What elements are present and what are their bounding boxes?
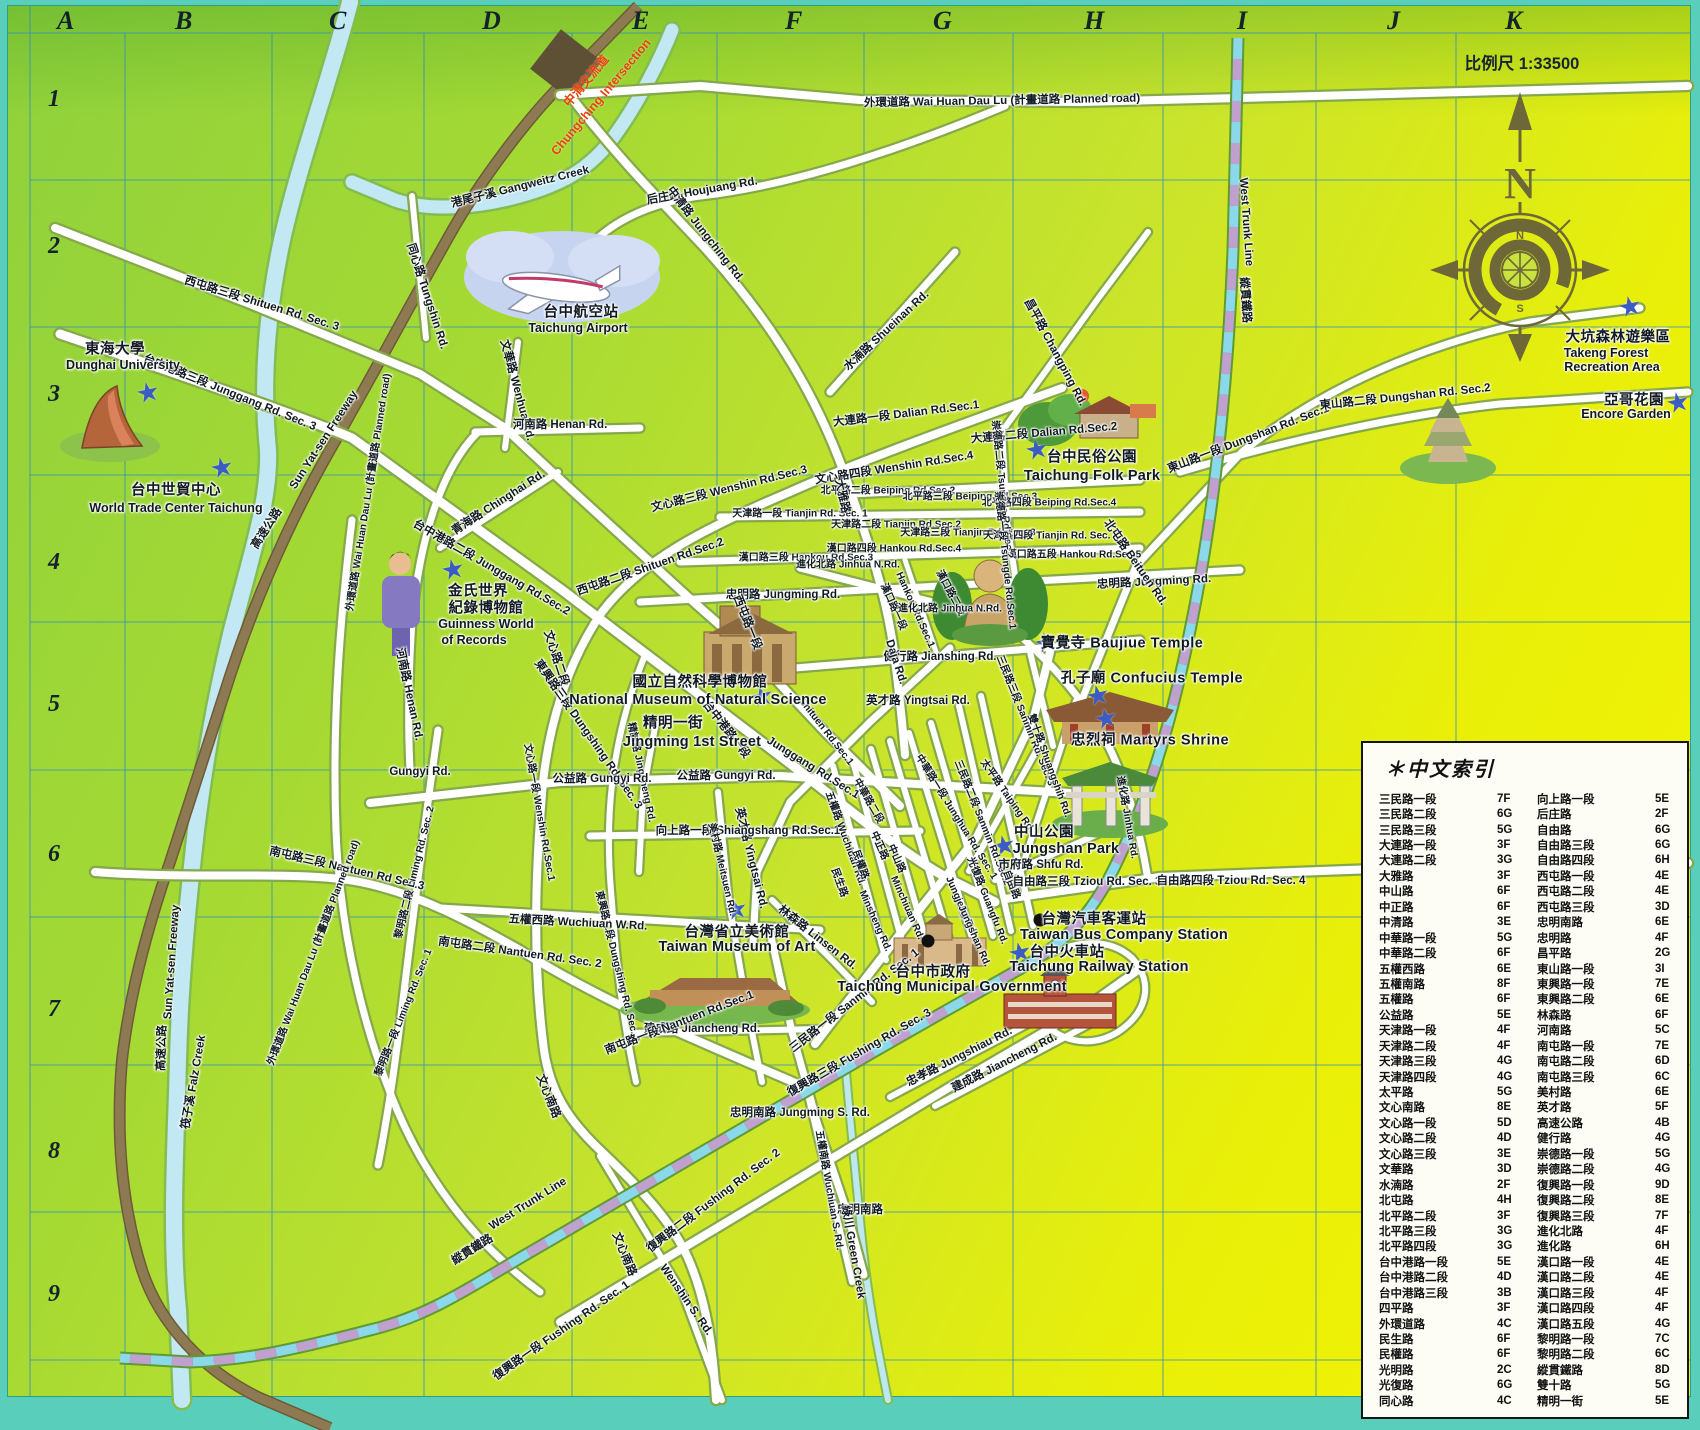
chinese-index-panel: ＊中文索引 三民路一段7F向上路一段5E三民路二段6G后庄路2F三民路三段5G自… (1361, 741, 1689, 1419)
index-grid-code: 5E (1497, 1256, 1537, 1268)
index-row: 台中港路二段4D漢口路二段4E (1379, 1270, 1679, 1285)
index-grid-code: 4E (1655, 870, 1679, 882)
index-road-name: 五權南路 (1379, 976, 1497, 992)
index-grid-code: 7E (1655, 978, 1679, 990)
landmark-label: 台中世貿中心 (131, 479, 221, 500)
grid-row-label-2: 2 (48, 233, 60, 260)
compass-n-small: N (1516, 230, 1524, 242)
index-grid-code: 4G (1655, 1318, 1679, 1330)
index-grid-code: 6G (1655, 839, 1679, 851)
landmark-label: 寶覺寺 Baujiue Temple (1041, 632, 1204, 653)
index-row: 天津路三段4G南屯路二段6D (1379, 1053, 1679, 1068)
index-road-name: 復興路三段 (1537, 1208, 1655, 1224)
index-row: 民生路6F黎明路一段7C (1379, 1331, 1679, 1346)
index-row: 北平路二段3F復興路三段7F (1379, 1208, 1679, 1223)
grid-row-label-1: 1 (48, 86, 60, 113)
index-grid-code: 6H (1655, 1240, 1679, 1252)
index-grid-code: 5E (1655, 1395, 1679, 1407)
index-row: 台中港路三段3B漢口路三段4F (1379, 1285, 1679, 1300)
landmark-label: World Trade Center Taichung (89, 501, 262, 515)
index-road-name: 民生路 (1379, 1331, 1497, 1347)
index-road-name: 天津路四段 (1379, 1069, 1497, 1085)
index-row: 天津路二段4F南屯路一段7E (1379, 1038, 1679, 1053)
road-label: 高速公路 (152, 1025, 170, 1072)
index-road-name: 南屯路三段 (1537, 1069, 1655, 1085)
index-grid-code: 6E (1497, 963, 1537, 975)
index-row: 文心路二段4D健行路4G (1379, 1131, 1679, 1146)
index-road-name: 復興路二段 (1537, 1192, 1655, 1208)
grid-col-label-C: C (329, 6, 346, 36)
landmark-label: 台中航空站 (544, 301, 619, 322)
road-label: 公益路 Gungyi Rd. (676, 767, 775, 783)
index-road-name: 南屯路二段 (1537, 1053, 1655, 1069)
grid-row-label-4: 4 (48, 549, 60, 576)
index-grid-code: 6C (1655, 1348, 1679, 1360)
index-row: 大連路一段3F自由路三段6G (1379, 837, 1679, 852)
index-road-name: 東興路一段 (1537, 976, 1655, 992)
index-road-name: 漢口路四段 (1537, 1300, 1655, 1316)
index-road-name: 中清路 (1379, 914, 1497, 930)
index-road-name: 北平路三段 (1379, 1223, 1497, 1239)
index-grid-code: 4F (1655, 932, 1679, 944)
landmark-label: of Records (441, 633, 506, 647)
landmark-label: Jingming 1st Street (623, 734, 761, 750)
index-road-name: 中山路 (1379, 883, 1497, 899)
index-road-name: 黎明路二段 (1537, 1346, 1655, 1362)
index-grid-code: 4F (1497, 1040, 1537, 1052)
landmark-label: 大坑森林遊樂區 (1566, 326, 1671, 347)
index-road-name: 天津路二段 (1379, 1038, 1497, 1054)
index-grid-code: 5G (1497, 824, 1537, 836)
grid-col-label-E: E (632, 6, 649, 36)
index-road-name: 大雅路 (1379, 868, 1497, 884)
index-grid-code: 4E (1655, 885, 1679, 897)
road-label: Gungyi Rd. (389, 766, 450, 778)
index-road-name: 河南路 (1537, 1022, 1655, 1038)
index-grid-code: 6F (1655, 1009, 1679, 1021)
index-grid-code: 8F (1497, 978, 1537, 990)
landmark-label: Takeng Forest (1564, 346, 1649, 360)
index-grid-code: 4E (1655, 1256, 1679, 1268)
index-grid-code: 6F (1497, 885, 1537, 897)
index-grid-code: 5D (1497, 1117, 1537, 1129)
road-label: 英才路 Yingtsai Rd. (866, 692, 970, 708)
grid-col-label-B: B (175, 6, 192, 36)
index-grid-code: 4B (1655, 1117, 1679, 1129)
road-label: 進化北路 Jinhua N.Rd. (796, 556, 900, 571)
index-road-name: 忠明路 (1537, 930, 1655, 946)
index-road-name: 健行路 (1537, 1130, 1655, 1146)
index-grid-code: 7F (1655, 1210, 1679, 1222)
index-grid-code: 4G (1497, 1055, 1537, 1067)
index-grid-code: 4F (1655, 1225, 1679, 1237)
index-road-name: 漢口路三段 (1537, 1285, 1655, 1301)
landmark-star-marker: ★ (133, 377, 162, 408)
index-grid-code: 5C (1655, 1024, 1679, 1036)
index-road-name: 三民路一段 (1379, 791, 1497, 807)
index-grid-code: 4G (1655, 1163, 1679, 1175)
road-label: 自由路四段 Tziou Rd. Sec. 4 (1157, 872, 1306, 888)
index-road-name: 雙十路 (1537, 1377, 1655, 1393)
index-grid-code: 2F (1655, 808, 1679, 820)
index-grid-code: 3B (1497, 1287, 1537, 1299)
index-road-name: 自由路三段 (1537, 837, 1655, 853)
grid-row-label-3: 3 (48, 381, 60, 408)
index-row: 五權南路8F東興路一段7E (1379, 976, 1679, 991)
index-road-name: 美村路 (1537, 1084, 1655, 1100)
index-row: 五權西路6E東山路一段3I (1379, 961, 1679, 976)
grid-col-label-A: A (57, 6, 74, 36)
index-road-name: 光復路 (1379, 1377, 1497, 1393)
index-road-name: 四平路 (1379, 1300, 1497, 1316)
road-casing (598, 106, 1005, 238)
landmark-label: 忠烈祠 Martyrs Shrine (1071, 729, 1229, 750)
index-grid-code: 6C (1655, 1071, 1679, 1083)
index-grid-code: 9D (1655, 1179, 1679, 1191)
index-row: 水湳路2F復興路一段9D (1379, 1177, 1679, 1192)
grid-row-label-7: 7 (48, 996, 60, 1023)
road-label: 縱貫鐵路 (1236, 276, 1255, 323)
index-row: 文心南路8E英才路5F (1379, 1100, 1679, 1115)
index-grid-code: 3D (1497, 1163, 1537, 1175)
index-grid-code: 6E (1655, 993, 1679, 1005)
index-road-name: 同心路 (1379, 1393, 1497, 1409)
index-grid-code: 8D (1655, 1364, 1679, 1376)
landmark-label: National Museum of Natural Science (569, 692, 826, 708)
index-road-name: 大連路二段 (1379, 852, 1497, 868)
index-road-name: 黎明路一段 (1537, 1331, 1655, 1347)
index-row: 三民路二段6G后庄路2F (1379, 806, 1679, 821)
index-grid-code: 2G (1655, 947, 1679, 959)
index-road-name: 復興路一段 (1537, 1177, 1655, 1193)
index-row: 文心路一段5D高速公路4B (1379, 1115, 1679, 1130)
index-road-name: 后庄路 (1537, 806, 1655, 822)
index-grid-code: 6F (1497, 993, 1537, 1005)
index-grid-code: 3E (1497, 1148, 1537, 1160)
index-road-name: 昌平路 (1537, 945, 1655, 961)
landmark-label: 中山公園 (1014, 821, 1074, 842)
index-row: 北平路三段3G進化北路4F (1379, 1223, 1679, 1238)
index-road-name: 文華路 (1379, 1161, 1497, 1177)
index-road-name: 公益路 (1379, 1007, 1497, 1023)
scale-label: 比例尺 1:33500 (1442, 50, 1602, 74)
index-grid-code: 4C (1497, 1318, 1537, 1330)
index-title: ＊中文索引 (1385, 753, 1495, 782)
index-row: 光明路2C縱貫鐵路8D (1379, 1362, 1679, 1377)
index-road-name: 漢口路二段 (1537, 1269, 1655, 1285)
index-grid-code: 6E (1655, 1086, 1679, 1098)
compass-north-big: N (1504, 159, 1536, 208)
index-row: 文心路三段3E崇德路一段5G (1379, 1146, 1679, 1161)
index-grid-code: 5E (1655, 793, 1679, 805)
index-grid-code: 6E (1655, 916, 1679, 928)
index-road-name: 進化北路 (1537, 1223, 1655, 1239)
index-grid-code: 6G (1497, 808, 1537, 820)
index-row: 五權路6F東興路二段6E (1379, 992, 1679, 1007)
index-road-name: 文心路三段 (1379, 1146, 1497, 1162)
index-grid-code: 4F (1655, 1287, 1679, 1299)
landmark-label: 國立自然科學博物館 (633, 671, 768, 692)
index-row: 太平路5G美村路6E (1379, 1084, 1679, 1099)
index-road-name: 高速公路 (1537, 1115, 1655, 1131)
index-body: 三民路一段7F向上路一段5E三民路二段6G后庄路2F三民路三段5G自由路6G大連… (1379, 791, 1679, 1409)
index-row: 大連路二段3G自由路四段6H (1379, 853, 1679, 868)
grid-col-label-H: H (1084, 6, 1104, 36)
landmark-label: Taichung Folk Park (1024, 468, 1160, 484)
grid-row-label-5: 5 (48, 691, 60, 718)
road-label: 忠明南路 Jungming S. Rd. (730, 1104, 870, 1120)
index-grid-code: 4D (1497, 1271, 1537, 1283)
landmark-label: Jungshan Park (1013, 841, 1120, 857)
landmark-label: Taichung Airport (528, 321, 627, 335)
index-row: 中清路3E忠明南路6E (1379, 915, 1679, 930)
index-road-name: 台中港路三段 (1379, 1285, 1497, 1301)
index-grid-code: 3G (1497, 1225, 1537, 1237)
road-label: 河南路 Henan Rd. (513, 416, 608, 432)
grid-col-label-D: D (482, 6, 501, 36)
index-grid-code: 3G (1497, 1240, 1537, 1252)
index-road-name: 漢口路五段 (1537, 1316, 1655, 1332)
index-road-name: 三民路二段 (1379, 806, 1497, 822)
index-road-name: 外環道路 (1379, 1316, 1497, 1332)
index-road-name: 崇德路二段 (1537, 1161, 1655, 1177)
grid-col-label-G: G (933, 6, 952, 36)
index-row: 中正路6F西屯路三段3D (1379, 899, 1679, 914)
grid-col-label-F: F (785, 6, 802, 36)
grid-row-label-9: 9 (48, 1281, 60, 1308)
index-road-name: 精明一街 (1537, 1393, 1655, 1409)
index-grid-code: 3F (1497, 1302, 1537, 1314)
landmark-label: Dunghai University (66, 358, 180, 372)
grid-row-label-8: 8 (48, 1138, 60, 1165)
grid-col-label-I: I (1237, 6, 1247, 36)
index-grid-code: 4H (1497, 1194, 1537, 1206)
index-grid-code: 5E (1497, 1009, 1537, 1021)
index-road-name: 文心南路 (1379, 1099, 1497, 1115)
landmark-star-marker: ★ (1615, 291, 1644, 322)
index-grid-code: 6F (1497, 1333, 1537, 1345)
index-road-name: 崇德路一段 (1537, 1146, 1655, 1162)
index-road-name: 北平路四段 (1379, 1238, 1497, 1254)
index-road-name: 北屯路 (1379, 1192, 1497, 1208)
road-casing (1073, 308, 1640, 722)
index-grid-code: 4G (1655, 1132, 1679, 1144)
index-road-name: 西屯路一段 (1537, 868, 1655, 884)
index-road-name: 自由路四段 (1537, 852, 1655, 868)
landmark-label: Taichung Municipal Government (837, 979, 1067, 995)
index-grid-code: 4C (1497, 1395, 1537, 1407)
index-road-name: 五權路 (1379, 991, 1497, 1007)
index-grid-code: 6F (1497, 1348, 1537, 1360)
index-road-name: 中華路二段 (1379, 945, 1497, 961)
index-road-name: 大連路一段 (1379, 837, 1497, 853)
index-road-name: 北平路二段 (1379, 1208, 1497, 1224)
landmark-label: Taichung Railway Station (1009, 959, 1188, 975)
index-row: 民權路6F黎明路二段6C (1379, 1347, 1679, 1362)
index-road-name: 民權路 (1379, 1346, 1497, 1362)
index-grid-code: 8E (1497, 1101, 1537, 1113)
index-road-name: 太平路 (1379, 1084, 1497, 1100)
index-grid-code: 6G (1655, 824, 1679, 836)
index-row: 中華路二段6F昌平路2G (1379, 945, 1679, 960)
index-row: 三民路一段7F向上路一段5E (1379, 791, 1679, 806)
index-grid-code: 6F (1497, 901, 1537, 913)
index-row: 同心路4C精明一街5E (1379, 1393, 1679, 1408)
index-grid-code: 4G (1497, 1071, 1537, 1083)
index-road-name: 中華路一段 (1379, 930, 1497, 946)
landmark-label: 精明一街 (643, 712, 703, 733)
landmark-label: Taiwan Museum of Art (658, 939, 815, 955)
landmark-label: 紀錄博物館 (449, 597, 524, 618)
index-road-name: 西屯路三段 (1537, 899, 1655, 915)
index-road-name: 漢口路一段 (1537, 1254, 1655, 1270)
landmark-label: 台中民俗公園 (1047, 446, 1137, 467)
index-row: 四平路3F漢口路四段4F (1379, 1300, 1679, 1315)
index-road-name: 進化路 (1537, 1238, 1655, 1254)
index-road-name: 向上路一段 (1537, 791, 1655, 807)
index-road-name: 東興路二段 (1537, 991, 1655, 1007)
road (1073, 308, 1640, 722)
index-road-name: 東山路一段 (1537, 961, 1655, 977)
road-label: 進化北路 Jinhua N.Rd. (898, 600, 1002, 615)
index-grid-code: 3F (1497, 839, 1537, 851)
index-row: 北屯路4H復興路二段8E (1379, 1192, 1679, 1207)
index-grid-code: 7E (1655, 1040, 1679, 1052)
index-grid-code: 4E (1655, 1271, 1679, 1283)
index-grid-code: 4F (1497, 1024, 1537, 1036)
index-row: 天津路一段4F河南路5C (1379, 1023, 1679, 1038)
index-grid-code: 7F (1497, 793, 1537, 805)
index-road-name: 忠明南路 (1537, 914, 1655, 930)
index-grid-code: 6D (1655, 1055, 1679, 1067)
index-road-name: 五權西路 (1379, 961, 1497, 977)
index-grid-code: 5G (1655, 1148, 1679, 1160)
index-grid-code: 6H (1655, 854, 1679, 866)
index-row: 外環道路4C漢口路五段4G (1379, 1316, 1679, 1331)
index-row: 中華路一段5G忠明路4F (1379, 930, 1679, 945)
index-road-name: 水湳路 (1379, 1177, 1497, 1193)
index-road-name: 西屯路二段 (1537, 883, 1655, 899)
landmark-label: Encore Garden (1581, 407, 1671, 421)
road-label: 漢口路四段 Hankou Rd.Sec.4 (827, 540, 961, 555)
index-road-name: 文心路二段 (1379, 1130, 1497, 1146)
landmark-label: Guinness World (438, 617, 534, 631)
index-grid-code: 5G (1655, 1379, 1679, 1391)
index-row: 光復路6G雙十路5G (1379, 1378, 1679, 1393)
index-road-name: 台中港路二段 (1379, 1269, 1497, 1285)
index-grid-code: 3G (1497, 854, 1537, 866)
index-grid-code: 8E (1655, 1194, 1679, 1206)
index-row: 台中港路一段5E漢口路一段4E (1379, 1254, 1679, 1269)
compass-s-small: S (1516, 303, 1523, 315)
index-grid-code: 4D (1497, 1132, 1537, 1144)
index-road-name: 光明路 (1379, 1362, 1497, 1378)
index-road-name: 三民路三段 (1379, 822, 1497, 838)
index-road-name: 天津路一段 (1379, 1022, 1497, 1038)
index-grid-code: 6G (1497, 1379, 1537, 1391)
road-label: 公益路 Gungyi Rd. (552, 770, 651, 786)
index-road-name: 縱貫鐵路 (1537, 1362, 1655, 1378)
landmark-label: 台灣汽車客運站 (1042, 908, 1147, 929)
index-row: 公益路5E林森路6F (1379, 1007, 1679, 1022)
index-road-name: 天津路三段 (1379, 1053, 1497, 1069)
landmark-label: Recreation Area (1564, 360, 1659, 374)
index-grid-code: 3F (1497, 1210, 1537, 1222)
grid-row-label-6: 6 (48, 841, 60, 868)
index-road-name: 英才路 (1537, 1099, 1655, 1115)
landmark-label: 東海大學 (85, 338, 145, 359)
index-grid-code: 7C (1655, 1333, 1679, 1345)
index-grid-code: 2F (1497, 1179, 1537, 1191)
grid-col-label-J: J (1387, 6, 1400, 36)
index-road-name: 南屯路一段 (1537, 1038, 1655, 1054)
index-row: 大雅路3F西屯路一段4E (1379, 868, 1679, 883)
index-grid-code: 2C (1497, 1364, 1537, 1376)
index-grid-code: 4F (1655, 1302, 1679, 1314)
index-row: 文華路3D崇德路二段4G (1379, 1162, 1679, 1177)
index-grid-code: 3F (1497, 870, 1537, 882)
road-label: 自由路三段 Tziou Rd. Sec. 3 (1013, 873, 1162, 889)
index-grid-code: 5G (1497, 932, 1537, 944)
index-row: 天津路四段4G南屯路三段6C (1379, 1069, 1679, 1084)
index-row: 三民路三段5G自由路6G (1379, 822, 1679, 837)
index-road-name: 台中港路一段 (1379, 1254, 1497, 1270)
index-road-name: 自由路 (1537, 822, 1655, 838)
index-road-name: 中正路 (1379, 899, 1497, 915)
taichung-tourist-map: N N S (0, 0, 1700, 1430)
index-grid-code: 5F (1655, 1101, 1679, 1113)
grid-col-label-K: K (1505, 6, 1522, 36)
index-road-name: 林森路 (1537, 1007, 1655, 1023)
index-row: 中山路6F西屯路二段4E (1379, 884, 1679, 899)
index-grid-code: 6F (1497, 947, 1537, 959)
road-label: 市府路 Shfu Rd. (999, 856, 1084, 872)
index-grid-code: 3E (1497, 916, 1537, 928)
index-road-name: 文心路一段 (1379, 1115, 1497, 1131)
index-row: 北平路四段3G進化路6H (1379, 1239, 1679, 1254)
index-grid-code: 5G (1497, 1086, 1537, 1098)
road-label: 向上路一段 Shiangshang Rd.Sec.1 (656, 822, 841, 838)
index-grid-code: 3I (1655, 963, 1679, 975)
landmark-label: 孔子廟 Confucius Temple (1061, 667, 1243, 688)
index-grid-code: 3D (1655, 901, 1679, 913)
road-casing (600, 1156, 722, 1400)
